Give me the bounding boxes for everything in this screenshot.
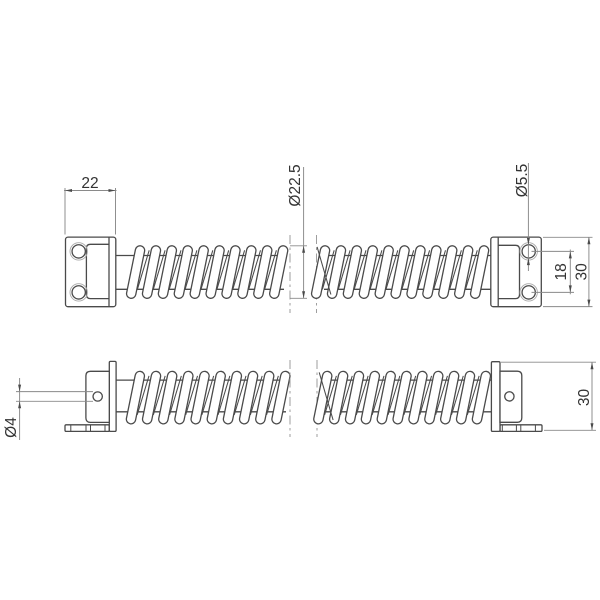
svg-text:Ø4: Ø4 xyxy=(3,417,20,438)
svg-text:18: 18 xyxy=(553,263,570,280)
svg-text:Ø5.5: Ø5.5 xyxy=(514,164,531,198)
svg-text:Ø22.5: Ø22.5 xyxy=(287,164,304,206)
svg-text:22: 22 xyxy=(81,175,98,192)
svg-text:30: 30 xyxy=(576,389,593,407)
svg-text:30: 30 xyxy=(574,263,591,281)
